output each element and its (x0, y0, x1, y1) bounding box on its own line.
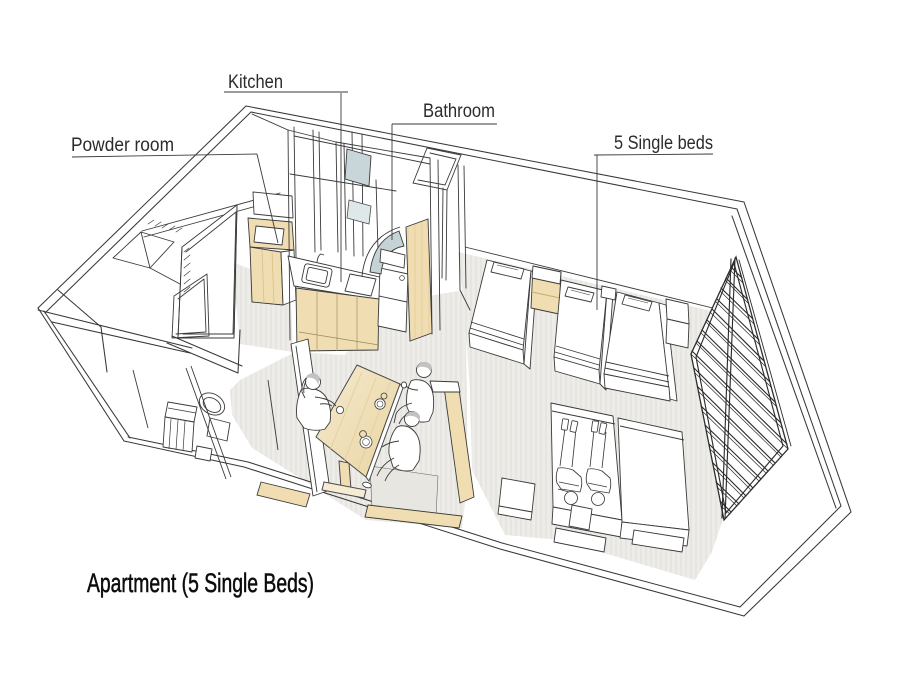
svg-text:Bathroom: Bathroom (423, 101, 495, 122)
svg-text:5 Single beds: 5 Single beds (614, 133, 713, 154)
svg-text:Powder room: Powder room (71, 135, 174, 156)
svg-text:Apartment (5 Single Beds): Apartment (5 Single Beds) (87, 568, 314, 598)
svg-text:Kitchen: Kitchen (228, 72, 283, 93)
